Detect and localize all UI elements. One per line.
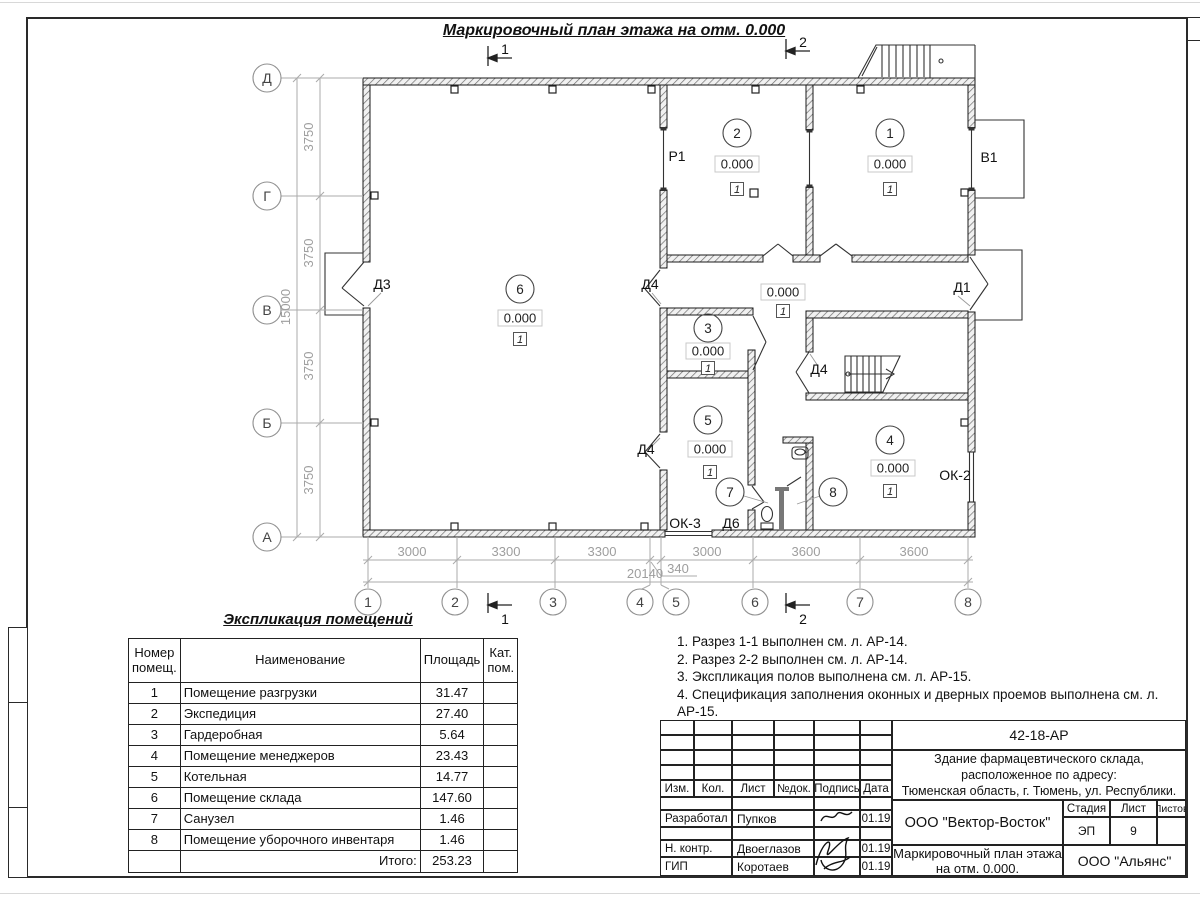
label-r1: Р1 [668,148,685,164]
schedule-title: Экспликация помещений [183,611,453,628]
dim-bottom-6: 3600 [900,544,929,559]
room-4-elevation: 0.000 [877,461,910,476]
table-row: 1Помещение разгрузки31.47 [129,683,518,704]
table-row: 3Гардеробная5.64 [129,725,518,746]
room-5-number: 5 [704,413,712,428]
signature-developer [818,808,858,826]
room-6-elevation: 0.000 [504,311,537,326]
dim-bottom-total: 20140 [627,566,663,581]
table-row: 6Помещение склада147.60 [129,788,518,809]
room-5-floor-type: 1 [707,467,713,479]
row-name: Помещение разгрузки [180,683,420,704]
dim-bottom-4: 3000 [693,544,722,559]
table-row: 4Помещение менеджеров23.43 [129,746,518,767]
label-ok3: ОК-3 [669,515,701,531]
tb-role-gip: ГИП [660,857,732,876]
tb-object-line1: Здание фармацевтического склада, располо… [893,751,1185,783]
row-num: 8 [129,830,181,851]
room-schedule-table: Номер помещ. Наименование Площадь Кат. п… [128,638,518,873]
total-cat-empty [484,851,518,873]
tb-name-developer: Пупков [732,810,814,827]
room-6-floor-type: 1 [517,334,523,346]
section-marks: 1 2 1 2 [488,34,810,627]
room-6-number: 6 [516,282,524,297]
section-1-top: 1 [501,41,509,57]
tb-sheet-number: 9 [1110,817,1157,845]
section-2-top: 2 [799,34,807,50]
room-5-elevation: 0.000 [694,442,727,457]
tb-object-description: Здание фармацевтического склада, располо… [892,750,1186,800]
axis-col-5: 5 [672,594,680,610]
dim-bottom-1: 3000 [398,544,427,559]
row-name: Помещение уборочного инвентаря [180,830,420,851]
row-cat [484,767,518,788]
row-name: Помещение склада [180,788,420,809]
axis-col-7: 7 [856,594,864,610]
stair-direction-arrow [848,369,894,379]
row-area: 1.46 [420,830,484,851]
tb-col-data: Дата [860,780,892,797]
signature-ncontrol-gip [810,833,860,877]
axis-col-1: 1 [364,594,372,610]
room-2-floor-type: 1 [734,184,740,196]
stair-room-door [796,352,809,393]
row-num: 1 [129,683,181,704]
tb-drawing-title: Маркировочный план этажа на отм. 0.000. [892,845,1063,876]
row-name: Котельная [180,767,420,788]
dimensions [281,74,973,589]
row-area: 5.64 [420,725,484,746]
row-num: 2 [129,704,181,725]
label-d4-c: Д4 [810,361,827,377]
label-d4-b: Д4 [637,441,654,457]
room-4-number: 4 [886,433,894,448]
room-1-number: 1 [886,126,894,141]
tb-org-customer: ООО "Альянс" [1063,845,1186,876]
room-2-elevation: 0.000 [721,157,754,172]
schedule-header-row: Номер помещ. Наименование Площадь Кат. п… [129,639,518,683]
toilet-icon [762,507,773,522]
drawing-sheet: Маркировочный план этажа на отм. 0.000 [0,0,1200,900]
axis-col-4: 4 [636,594,644,610]
tb-sheet-label: Лист [1110,800,1157,817]
axis-row-v: В [262,302,271,318]
row-num: 7 [129,809,181,830]
title-block: Изм. Кол. Лист №док. Подпись Дата Разраб… [660,720,1186,876]
row-area: 31.47 [420,683,484,704]
dim-left-1: 3750 [301,123,316,152]
row-area: 23.43 [420,746,484,767]
note-line: 1. Разрез 1-1 выполнен см. л. АР-14. [677,633,1200,651]
tb-date-gip: 01.19 [860,857,892,876]
corridor-floor-type: 1 [780,306,786,318]
dim-bottom-extra: 340 [667,561,689,576]
room-3-number: 3 [704,321,712,336]
row-num: 3 [129,725,181,746]
col-room-number: Номер помещ. [129,639,181,683]
row-cat [484,809,518,830]
row-num: 6 [129,788,181,809]
total-value: 253.23 [420,851,484,873]
row-name: Экспедиция [180,704,420,725]
tb-sheets-total [1157,817,1186,845]
tb-col-ndok: №док. [774,780,814,797]
tb-sheets-label: Листов [1157,800,1186,817]
row-num: 4 [129,746,181,767]
openings-and-fixtures [325,45,1024,536]
gate-end-plates [661,127,975,191]
section-1-bottom: 1 [501,611,509,627]
axis-col-3: 3 [549,594,557,610]
axis-row-b: Б [262,415,271,431]
row-cat [484,746,518,767]
tb-stage-label: Стадия [1063,800,1110,817]
note-line: 4. Спецификация заполнения оконных и две… [677,686,1200,721]
total-label: Итого: [180,851,420,873]
col-name: Наименование [180,639,420,683]
note-line: 2. Разрез 2-2 выполнен см. л. АР-14. [677,651,1200,669]
label-d6: Д6 [722,515,739,531]
dim-left-3: 3750 [301,352,316,381]
door-d1-swing [970,257,988,310]
label-d3: Д3 [373,276,390,292]
tb-name-ncontrol: Двоеглазов [732,840,814,857]
table-row: 8Помещение уборочного инвентаря1.46 [129,830,518,851]
room-7-number: 7 [726,485,734,500]
corridor-door-1 [763,244,793,256]
exterior-stair-treads [882,45,924,77]
schedule-total-row: Итого:253.23 [129,851,518,873]
col-category: Кат. пом. [484,639,518,683]
section-2-bottom: 2 [799,611,807,627]
room-2-number: 2 [733,126,741,141]
row-name: Помещение менеджеров [180,746,420,767]
label-d4-a: Д4 [641,276,658,292]
door-d3-swing [342,262,364,306]
table-row: 7Санузел1.46 [129,809,518,830]
room-1-elevation: 0.000 [874,157,907,172]
axis-row-d: Д [262,70,272,86]
tb-role-developer: Разработал [660,810,732,827]
tb-stage-value: ЭП [1063,817,1110,845]
axis-col-2: 2 [451,594,459,610]
row-area: 147.60 [420,788,484,809]
row-name: Санузел [180,809,420,830]
note-line: 3. Экспликация полов выполнена см. л. АР… [677,668,1200,686]
dim-left-4: 3750 [301,466,316,495]
wc-partition [775,487,789,530]
row-area: 14.77 [420,767,484,788]
tb-col-izm: Изм. [660,780,694,797]
dock-platform-d1 [975,250,1022,320]
corridor-door-2 [820,244,852,256]
window-ok3 [665,532,712,536]
wc7-door [752,486,764,509]
row-cat [484,830,518,851]
room-8-number: 8 [829,485,837,500]
row-cat [484,788,518,809]
axis-row-g: Г [263,188,271,204]
axis-row-a: А [262,529,272,545]
room-3-floor-type: 1 [705,363,711,375]
row-area: 27.40 [420,704,484,725]
dim-bottom-3: 3300 [588,544,617,559]
row-cat [484,704,518,725]
label-d1: Д1 [953,279,970,295]
dim-left-2: 3750 [301,239,316,268]
row-num: 5 [129,767,181,788]
tb-object-line2: Тюменская область, г. Тюмень, ул. Респуб… [902,783,1177,799]
tb-doc-number: 42-18-АР [892,720,1186,750]
dim-bottom-2: 3300 [492,544,521,559]
corridor-elevation: 0.000 [767,285,800,300]
tb-col-podpis: Подпись [814,780,860,797]
tb-date-ncontrol: 01.19 [860,840,892,857]
tb-title-line2: на отм. 0.000. [936,861,1019,876]
axis-col-8: 8 [964,594,972,610]
row-cat [484,683,518,704]
dim-bottom-5: 3600 [792,544,821,559]
tb-role-ncontrol: Н. контр. [660,840,732,857]
tb-name-gip: Коротаев [732,857,814,876]
axis-col-6: 6 [751,594,759,610]
table-row: 5Котельная14.77 [129,767,518,788]
tb-date-developer: 01.19 [860,810,892,827]
label-ok2: ОК-2 [939,467,971,483]
room-1-floor-type: 1 [887,184,893,196]
vestibule-outline [325,253,363,315]
notes-block: 1. Разрез 1-1 выполнен см. л. АР-14. 2. … [677,633,1200,721]
tb-col-list: Лист [732,780,774,797]
room-3-elevation: 0.000 [692,344,725,359]
tb-col-kol: Кол. [694,780,732,797]
tb-title-line1: Маркировочный план этажа [893,846,1062,861]
label-v1: В1 [980,149,997,165]
row-area: 1.46 [420,809,484,830]
row-name: Гардеробная [180,725,420,746]
dimension-labels: 3750 3750 3750 3750 15000 3000 3300 3300… [278,123,928,581]
row-cat [484,725,518,746]
wc8-door [787,477,801,486]
tb-org-design: ООО "Вектор-Восток" [892,800,1063,845]
room-4-floor-type: 1 [887,486,893,498]
col-area: Площадь [420,639,484,683]
total-empty [129,851,181,873]
table-row: 2Экспедиция27.40 [129,704,518,725]
